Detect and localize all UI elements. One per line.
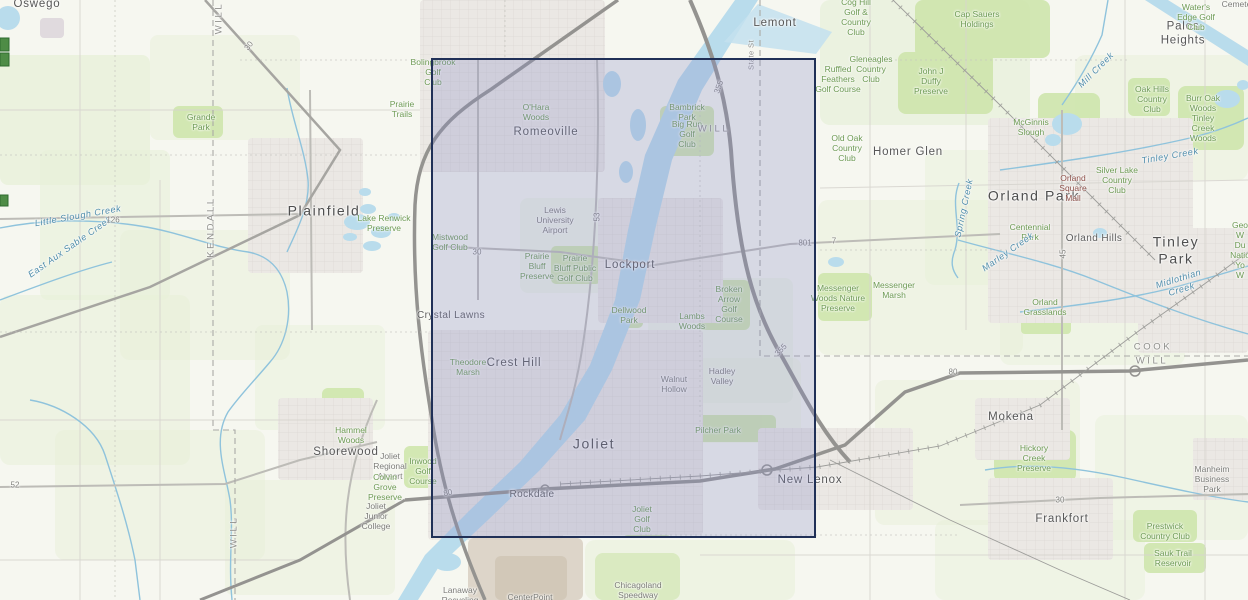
map-label: Sauk Trail Reservoir: [1154, 548, 1192, 568]
map-label: Burr Oak Woods Tinley Creek Woods: [1181, 93, 1226, 143]
map-label: Gleneagles Country Club: [849, 54, 892, 84]
map-label: Shorewood: [313, 446, 378, 460]
map-label: Mill Creek: [1076, 50, 1116, 90]
map-label: Marley Creek: [980, 230, 1036, 274]
map-label: Joliet Regional Airport: [373, 451, 407, 481]
map-label: COOK: [1134, 341, 1172, 352]
map-label: CenterPoint: [508, 592, 553, 600]
map-label: Cap Sauers Holdings: [955, 9, 1000, 29]
map-label: Chicagoland Speedway: [614, 580, 661, 600]
map-canvas[interactable]: OswegoPlainfieldRomeovilleLockportJoliet…: [0, 0, 1248, 600]
map-label: Oak Hills Country Club: [1135, 84, 1169, 114]
map-label: Orland Park: [988, 188, 1080, 205]
map-label: 30: [1056, 495, 1065, 504]
map-label: Tinley Park: [1140, 233, 1212, 266]
map-label: Ruffled Feathers Golf Course: [815, 64, 860, 94]
map-label: John J Duffy Preserve: [914, 66, 948, 96]
map-label: KENDALL: [205, 196, 216, 258]
map-label: Mokena: [988, 411, 1034, 425]
map-label: Hammel Woods: [335, 425, 367, 445]
map-label: Colvin Grove Preserve: [368, 472, 402, 502]
map-label: Geo W Du Natio Yo W: [1230, 220, 1248, 280]
map-label: 52: [11, 480, 20, 489]
map-label: WILL: [213, 2, 224, 35]
map-label: Cemetery: [1222, 0, 1248, 9]
map-label: Orland Square Mall: [1059, 173, 1086, 203]
map-label: WILL: [228, 516, 239, 549]
map-label: Plainfield: [288, 203, 361, 220]
map-label: Messenger Marsh: [873, 280, 915, 300]
map-label: Little Slough Creek: [34, 203, 122, 229]
map-label: Homer Glen: [873, 146, 943, 160]
map-label: Silver Lake Country Club: [1096, 165, 1138, 195]
map-label: Lanaway Recycling: [442, 585, 479, 600]
map-label: Joliet Junior College: [362, 501, 391, 531]
map-label: Lemont: [753, 17, 796, 31]
map-label: Orland Grasslands: [1024, 297, 1067, 317]
map-label: 30: [243, 40, 256, 53]
map-label: 45: [1058, 250, 1067, 259]
map-label: 126: [106, 215, 119, 224]
map-label: Spring Creek: [953, 178, 976, 239]
map-label: WILL: [1136, 355, 1169, 366]
map-label: Messenger Woods Nature Preserve: [811, 283, 865, 313]
map-label: 7: [832, 236, 836, 245]
map-label: Lake Renwick Preserve: [358, 213, 411, 233]
map-label: Hickory Creek Preserve: [1017, 443, 1051, 473]
map-label: Palos Heights: [1151, 20, 1216, 47]
map-label: Prestwick Country Club: [1140, 521, 1190, 541]
map-label: Orland Hills: [1066, 233, 1122, 245]
selection-rectangle[interactable]: [431, 58, 816, 538]
map-label: Centennial Park: [1010, 222, 1051, 242]
map-label: Oswego: [14, 0, 61, 12]
map-label: Midlothian Creek: [1144, 264, 1215, 304]
map-label: Old Oak Country Club: [831, 133, 862, 163]
map-label: Tinley Creek: [1141, 146, 1200, 166]
map-label: McGinnis Slough: [1013, 117, 1048, 137]
map-label: Prairie Trails: [390, 99, 415, 119]
map-label: 80: [949, 367, 958, 376]
map-label: Cog Hill Golf & Country Club: [841, 0, 871, 37]
map-label: Water's Edge Golf Club: [1170, 2, 1222, 32]
map-label: Frankfort: [1035, 513, 1088, 527]
map-label: East Aux Sable Creek: [26, 214, 114, 280]
map-label: Grande Park: [187, 112, 215, 132]
map-label: Manheim Business Park: [1195, 464, 1230, 494]
